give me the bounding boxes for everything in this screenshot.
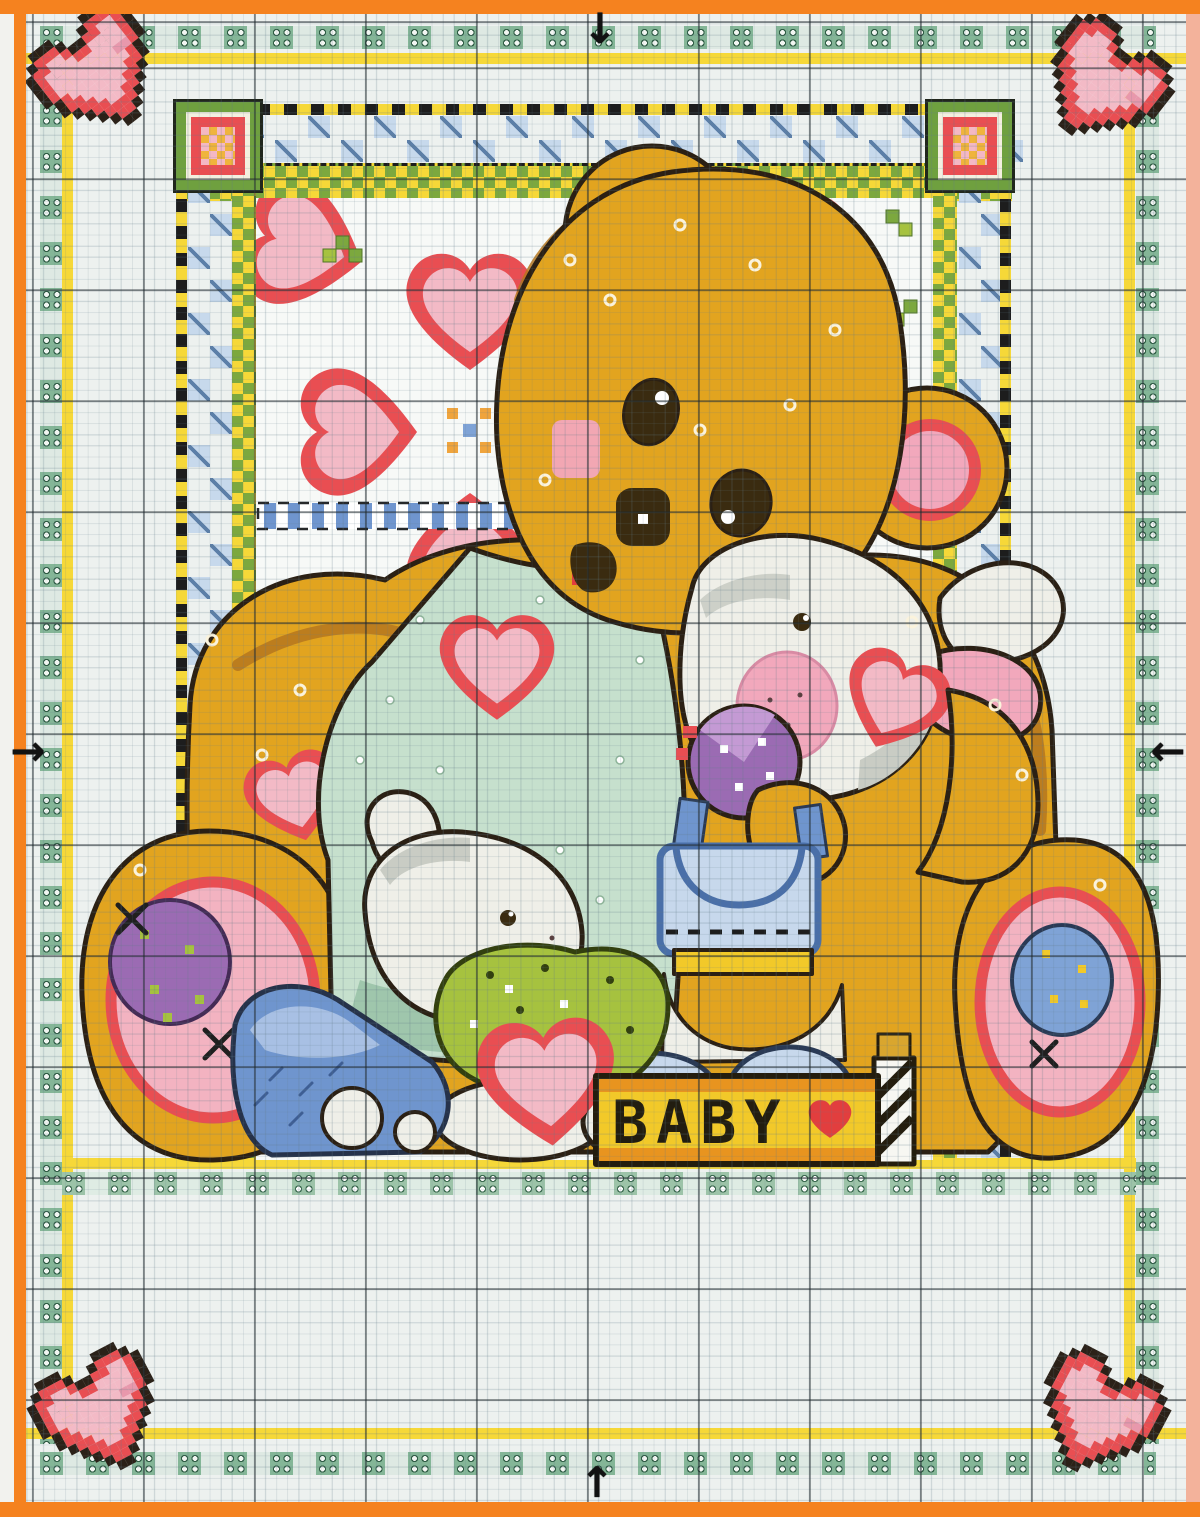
left-pad-purple-patch — [110, 900, 230, 1024]
overalls-bib — [660, 846, 818, 954]
margin-bar-right — [1186, 14, 1200, 1502]
bunny-eye — [793, 613, 811, 631]
center-mark-arrow-down: ↓ — [582, 8, 617, 50]
right-pad-blue-patch — [1012, 925, 1112, 1035]
center-mark-arrow-up: ↑ — [579, 1462, 614, 1504]
center-mark-arrow-right: → — [10, 730, 45, 772]
cross-stitch-chart-page: BABY ↓↑→← — [0, 0, 1200, 1517]
center-mark-arrow-left: ← — [1150, 730, 1185, 772]
blue-bunny-paw — [322, 1088, 382, 1148]
baby-label: BABY — [612, 1088, 789, 1158]
bear-cheek — [552, 420, 600, 478]
white-bunny-eye — [500, 910, 516, 926]
quilt-center-dots — [447, 408, 491, 453]
teddy-bear: BABY — [82, 146, 1159, 1164]
illustration-svg: BABY — [0, 0, 1200, 1517]
overalls-yellow-band — [674, 950, 812, 974]
